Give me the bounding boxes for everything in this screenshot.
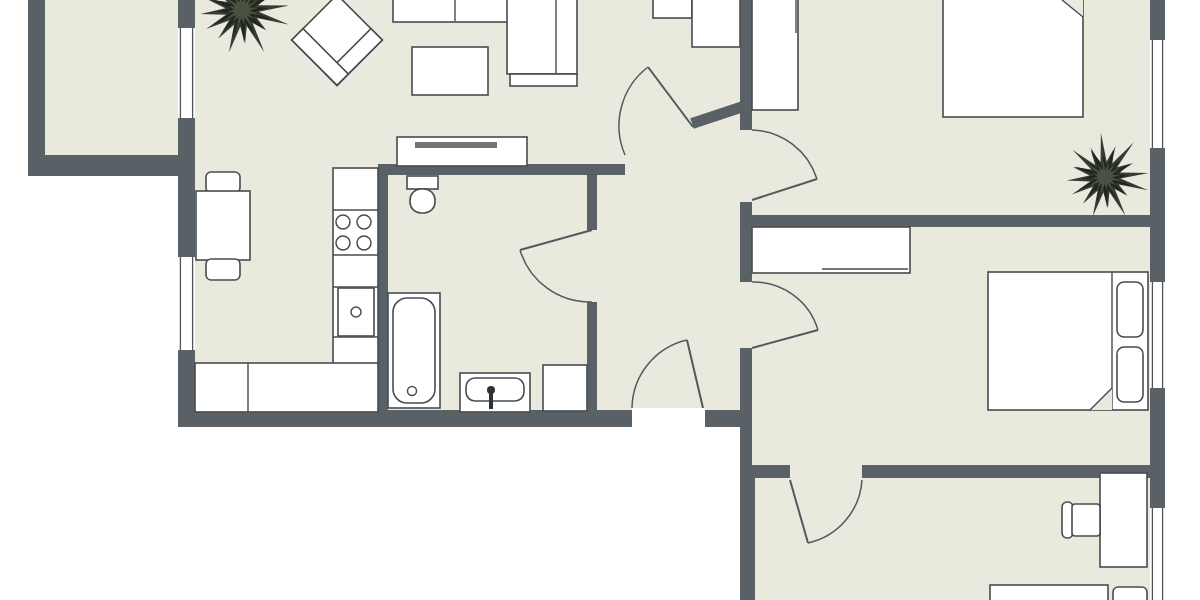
entry-door-threshold <box>632 408 705 427</box>
wall-outer-right-b <box>1150 148 1165 282</box>
toilet-bowl <box>410 189 435 213</box>
wall-bath-hall-top <box>587 164 597 230</box>
kitchen-sink-cabinet <box>338 288 374 336</box>
bedroom2-pillow-b <box>1117 347 1143 402</box>
coffee-table <box>412 47 488 95</box>
floor-plan-stage <box>0 0 1200 600</box>
wall-outer-right-a <box>1150 0 1165 40</box>
wall-left-middle <box>178 118 195 257</box>
tv-bench <box>397 137 527 166</box>
bedroom3-chair-seat <box>1072 504 1100 536</box>
toilet-tank <box>407 176 438 189</box>
hall-cabinet-small <box>653 0 692 18</box>
wall-kitchen-bath <box>378 164 388 427</box>
bedroom2-pillow-a <box>1117 282 1143 337</box>
wall-left-top <box>178 0 195 28</box>
washing-machine <box>543 365 587 411</box>
wall-bath-hall-bottom <box>587 302 597 427</box>
wall-right-lower-vert <box>740 465 755 600</box>
bedroom1-wardrobe <box>752 0 798 110</box>
bedroom3-bed <box>990 585 1108 600</box>
sofa-front-armrest <box>510 74 577 86</box>
wall-balcony-bottom <box>28 155 182 176</box>
dining-chair-top <box>206 172 240 193</box>
dining-table <box>196 191 250 260</box>
sofa-seats <box>393 0 510 22</box>
wall-hall-right-mid <box>740 202 752 282</box>
bathroom-sink-basin <box>466 378 524 401</box>
bedroom3-desk <box>1100 473 1147 567</box>
wall-bed2-bed3-left <box>752 465 790 478</box>
bedroom3-nightstand <box>1113 587 1147 600</box>
wall-balcony-left <box>28 0 45 176</box>
bedroom2-wardrobe <box>752 227 910 273</box>
hall-cabinet-tall <box>692 0 740 47</box>
balcony-floor <box>45 0 178 160</box>
bedroom1-bed <box>943 0 1083 117</box>
wall-outer-right-c <box>1150 388 1165 508</box>
sofa-corner-section <box>507 0 577 74</box>
floor-plan <box>0 0 1200 600</box>
wall-bed1-bed2 <box>752 215 1165 227</box>
wall-hall-right-low <box>740 348 752 468</box>
dining-chair-bottom <box>206 259 240 280</box>
sink-faucet-stem <box>489 393 493 409</box>
tv <box>415 142 497 148</box>
sink-faucet-dot <box>487 386 495 394</box>
kitchen-lower-cabinets <box>195 363 378 412</box>
